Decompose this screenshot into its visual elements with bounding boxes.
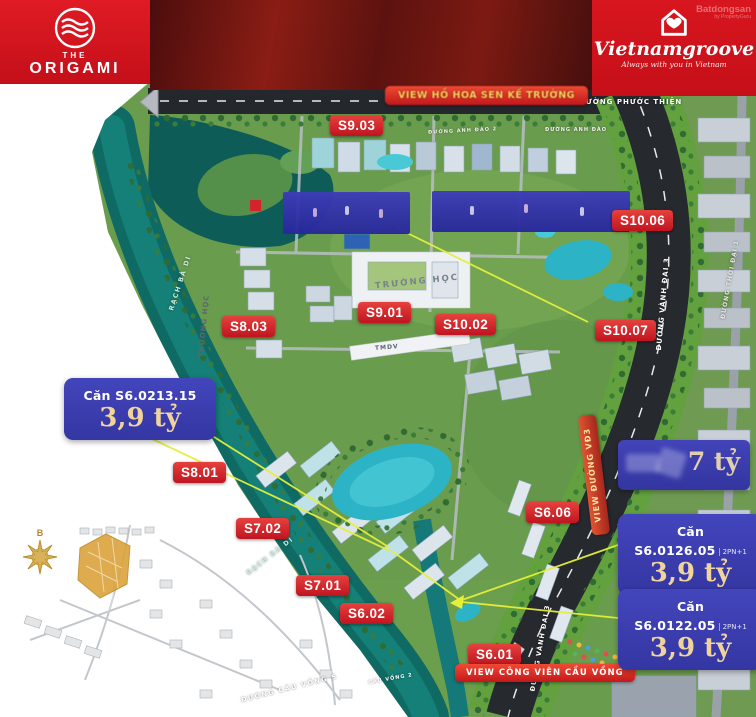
unit-price: 3,9 tỷ: [624, 634, 756, 662]
figure-mark: [580, 207, 584, 216]
block-label-s8-01: S8.01: [173, 462, 226, 483]
unit-type: 2PN+1: [719, 548, 747, 556]
block-label-s9-03: S9.03: [330, 115, 383, 136]
unit-price: 7 tỷ: [688, 447, 740, 476]
agency-name: Vietnamgroove: [592, 38, 756, 60]
price-callout-s6-0213-15: Căn S6.0213.15 3,9 tỷ: [64, 378, 216, 440]
blue-overlay-strip-left: [283, 192, 410, 234]
origami-logo-icon: [53, 6, 97, 50]
rainbow-park-view-banner: VIEW CÔNG VIÊN CẦU VỒNG: [455, 664, 635, 682]
unit-code: Căn S6.0213.15: [83, 388, 196, 403]
unit-code: Căn S6.0126.05: [634, 524, 715, 558]
origami-brand-prefix: THE: [0, 51, 150, 60]
unit-type: 2PN+1: [719, 623, 747, 631]
block-label-s7-01: S7.01: [296, 575, 349, 596]
price-callout-faded: 7 tỷ: [618, 440, 750, 490]
block-label-s8-03: S8.03: [222, 316, 275, 337]
top-view-banner: VIEW HỒ HOA SEN KẾ TRƯỜNG: [385, 86, 588, 105]
figure-mark: [379, 209, 383, 218]
unit-price: 3,9 tỷ: [70, 404, 210, 432]
batdongsan-watermark-sub: by PropertyGuru: [696, 15, 751, 21]
road-label-phuoc-thien: ĐƯỜNG PHƯỚC THIỆN: [579, 98, 682, 106]
blue-overlay-strip-right: [432, 191, 630, 232]
block-label-s10-02: S10.02: [435, 314, 496, 335]
figure-mark: [524, 204, 528, 213]
house-heart-icon: [657, 6, 691, 40]
batdongsan-watermark: Batdongsan by PropertyGuru: [696, 5, 751, 21]
blur-smudge: [655, 447, 688, 480]
block-label-s6-02: S6.02: [340, 603, 393, 624]
price-callout-s6-0126-05: Căn S6.0126.052PN+1 3,9 tỷ: [618, 514, 756, 595]
vietnamgroove-brand-block: Batdongsan by PropertyGuru Vietnamgroove…: [592, 0, 756, 96]
agency-tagline: Always with you in Vietnam: [592, 60, 756, 69]
compass-north-label: B: [37, 528, 44, 538]
block-label-s10-06: S10.06: [612, 210, 673, 231]
figure-mark: [345, 206, 349, 215]
price-callout-s6-0122-05: Căn S6.0122.052PN+1 3,9 tỷ: [618, 589, 756, 670]
block-label-s9-01: S9.01: [358, 302, 411, 323]
unit-code: Căn S6.0122.05: [634, 599, 715, 633]
block-label-s6-06: S6.06: [526, 502, 579, 523]
figure-mark: [470, 206, 474, 215]
origami-brand-block: THE ORIGAMI: [0, 0, 150, 84]
origami-brand-name: ORIGAMI: [0, 60, 150, 78]
block-label-s7-02: S7.02: [236, 518, 289, 539]
figure-mark: [313, 208, 317, 217]
block-label-s6-01: S6.01: [468, 644, 521, 665]
top-photo-strip: [150, 0, 592, 90]
unit-price: 3,9 tỷ: [624, 559, 756, 587]
masterplan-screenshot: B ĐƯỜNG PHƯỚC THIỆN ĐƯỜNG ANH ĐÀO 2 ĐƯỜN…: [0, 0, 756, 717]
block-label-s10-07: S10.07: [595, 320, 656, 341]
road-label-anh-dao: ĐƯỜNG ANH ĐÀO: [545, 127, 607, 133]
